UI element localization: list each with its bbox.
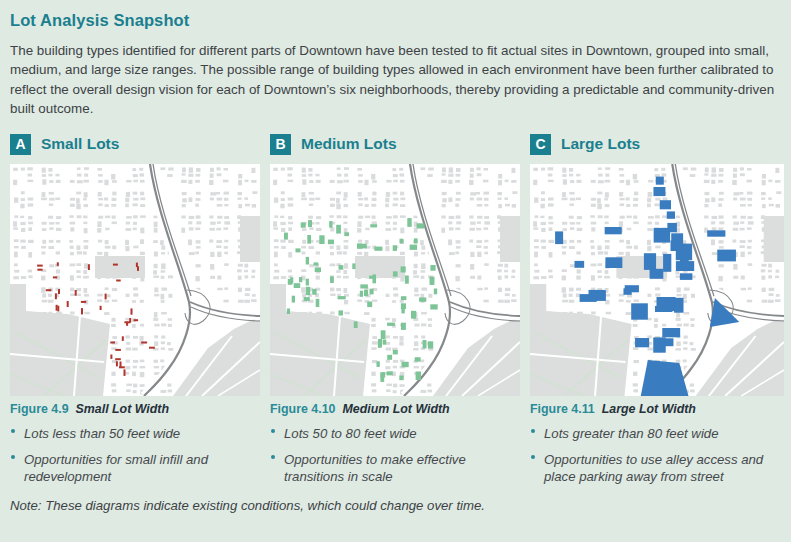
figure-label: Figure 4.10 xyxy=(270,402,335,416)
section-title-large: Large Lots xyxy=(561,135,640,153)
bullet-item: Opportunities for small infill and redev… xyxy=(10,451,260,486)
badge-b: B xyxy=(270,134,291,155)
bullet-list: Lots greater than 80 feet wide Opportuni… xyxy=(530,425,784,485)
section-header: B Medium Lots xyxy=(270,133,520,155)
figure-caption: Medium Lot Width xyxy=(342,402,449,416)
badge-c: C xyxy=(530,134,551,155)
note-text: Note: These diagrams indicate existing c… xyxy=(10,498,782,513)
map-small-lots xyxy=(10,164,260,396)
bullet-dot-icon xyxy=(11,455,15,459)
map-large-lots xyxy=(530,164,784,396)
figure-label: Figure 4.11 xyxy=(530,402,595,416)
figure-caption: Small Lot Width xyxy=(76,402,170,416)
bullet-dot-icon xyxy=(11,429,15,433)
section-medium-lots: B Medium Lots Figure 4.10Medium Lot Widt… xyxy=(270,131,520,493)
page-title: Lot Analysis Snapshot xyxy=(10,11,782,30)
section-title-medium: Medium Lots xyxy=(301,135,397,153)
bullet-list: Lots 50 to 80 feet wide Opportunities to… xyxy=(270,425,520,485)
badge-a: A xyxy=(10,134,31,155)
bullet-dot-icon xyxy=(531,455,535,459)
map-medium-lots xyxy=(270,164,520,396)
bullet-item: Opportunities to use alley access and pl… xyxy=(530,451,784,486)
figure-line: Figure 4.9Small Lot Width xyxy=(10,402,260,416)
figure-label: Figure 4.9 xyxy=(10,402,69,416)
bullet-item: Opportunities to make effective transiti… xyxy=(270,451,520,486)
bullet-item: Lots greater than 80 feet wide xyxy=(530,425,784,442)
figure-line: Figure 4.10Medium Lot Width xyxy=(270,402,520,416)
figure-line: Figure 4.11Large Lot Width xyxy=(530,402,784,416)
section-small-lots: A Small Lots Figure 4.9Small Lot Width L… xyxy=(10,131,260,493)
bullet-dot-icon xyxy=(531,429,535,433)
section-large-lots: C Large Lots Figure 4.11Large Lot Width … xyxy=(530,131,784,493)
intro-paragraph: The building types identified for differ… xyxy=(10,41,782,118)
bullet-dot-icon xyxy=(271,455,275,459)
bullet-item: Lots 50 to 80 feet wide xyxy=(270,425,520,442)
document-page: Lot Analysis Snapshot The building types… xyxy=(0,0,791,542)
figure-caption: Large Lot Width xyxy=(602,402,696,416)
bullet-list: Lots less than 50 feet wide Opportunitie… xyxy=(10,425,260,485)
section-header: A Small Lots xyxy=(10,133,260,155)
bullet-dot-icon xyxy=(271,429,275,433)
lot-columns: A Small Lots Figure 4.9Small Lot Width L… xyxy=(10,131,782,493)
section-header: C Large Lots xyxy=(530,133,784,155)
bullet-item: Lots less than 50 feet wide xyxy=(10,425,260,442)
section-title-small: Small Lots xyxy=(41,135,119,153)
